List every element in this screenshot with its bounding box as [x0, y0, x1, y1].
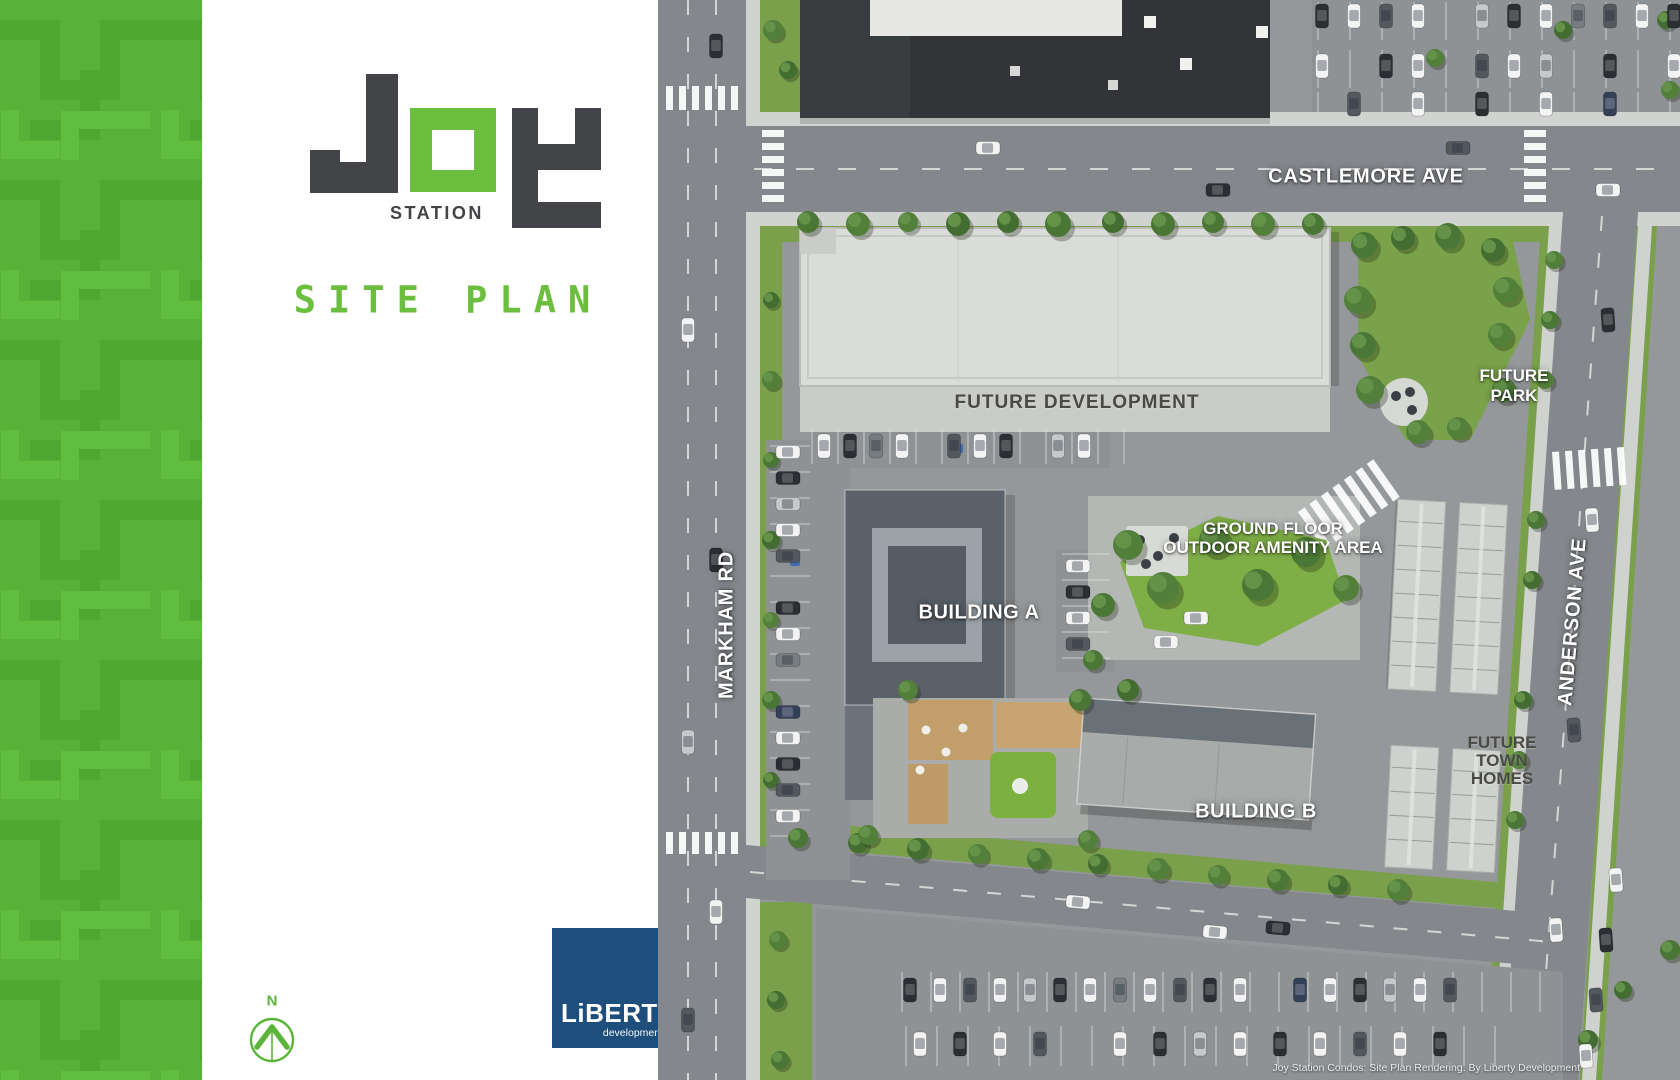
joy-station-site-plan-page: JOY STATION SITE PLAN N [0, 0, 1680, 1080]
map-caption: Joy Station Condos: Site Plan Rendering.… [1272, 1062, 1580, 1074]
logo-station-text: STATION [390, 203, 484, 224]
compass-north-label: N [267, 993, 278, 1010]
site-map: CASTLEMORE AVE MARKHAM RD ANDERSON AVE F… [658, 0, 1680, 1080]
joy-station-logo: JOY STATION [310, 72, 610, 234]
site-plan-title: SITE PLAN [294, 279, 602, 322]
north-compass-icon [244, 1012, 300, 1068]
liberty-subtitle: development [603, 1027, 663, 1039]
liberty-development-logo: LiBERTY development [552, 928, 672, 1048]
aerial-rendering [658, 0, 1680, 1080]
liberty-name: LiBERTY [561, 1000, 663, 1026]
left-panel: JOY STATION SITE PLAN N [202, 0, 658, 1080]
green-pattern-rail [0, 0, 202, 1080]
